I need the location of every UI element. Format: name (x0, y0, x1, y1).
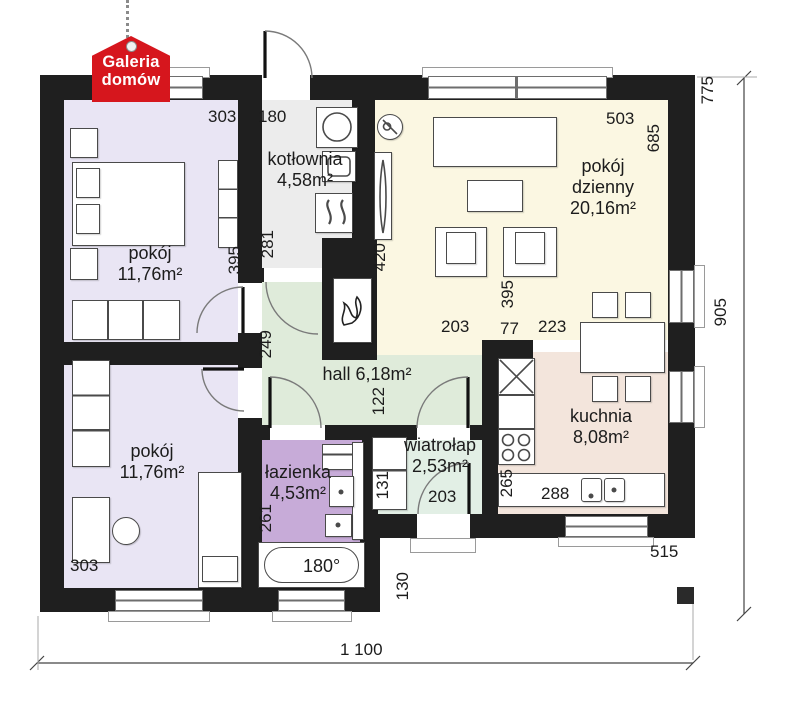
dim-wall-segment: 77 (500, 320, 519, 337)
toilet (325, 514, 352, 537)
boiler (315, 193, 353, 233)
window-kitchen-right (669, 371, 694, 423)
room-name: pokój dzienny (572, 156, 634, 197)
dim-dzienny-height: 685 (645, 124, 662, 152)
window-living-right (669, 270, 694, 323)
dim-pokoj2-width: 303 (70, 557, 98, 574)
fireplace (333, 278, 372, 343)
ceiling-lamp-icon (377, 114, 403, 140)
dining-chair (592, 292, 618, 318)
window-living-top (428, 76, 607, 99)
pillow (202, 556, 238, 582)
label-kitchen: kuchnia 8,08m² (551, 406, 651, 448)
dim-tick (737, 607, 751, 621)
window-sill (558, 537, 654, 547)
label-vestibule: wiatrołap 2,53m² (388, 435, 492, 477)
nightstand (70, 128, 98, 158)
wall-kitchen-top-chunk (482, 340, 533, 358)
room-name: pokój (130, 441, 173, 461)
dining-table (580, 322, 665, 373)
label-bedroom-bottom: pokój 11,76m² (92, 441, 212, 483)
dim-vest-wardrobe: 131 (374, 471, 391, 499)
logo-line2: domów (102, 71, 161, 89)
dim-lazienka-height: 261 (257, 504, 274, 532)
dining-chair (625, 292, 651, 318)
room-name: łazienka (265, 462, 331, 482)
window-mullion (515, 77, 518, 98)
room-area: 2,53m² (412, 456, 468, 476)
door-opening-bedroom-top (238, 283, 262, 333)
dim-total-width: 1 100 (340, 641, 383, 658)
desk (72, 497, 110, 563)
wardrobe (218, 160, 238, 248)
dim-entry-width: 180 (258, 108, 286, 125)
label-bathroom: łazienka 4,53m² (248, 462, 348, 504)
door-opening-entrance-main (417, 514, 470, 538)
logo-grommet-icon (126, 41, 137, 52)
door-opening-entrance-top (262, 75, 310, 100)
room-area: 11,76m² (120, 462, 185, 482)
label-boiler: kotłownia 4,58m² (252, 149, 358, 191)
room-name: kotłownia (267, 149, 342, 169)
window-sill (108, 611, 210, 622)
floor-plan: pokój 11,76m² kotłownia 4,58m² pokój dzi… (0, 0, 785, 704)
label-living: pokój dzienny 20,16m² (553, 156, 653, 220)
dim-pokoj1-height: 395 (226, 246, 243, 274)
chair-round (112, 517, 140, 545)
room-area: 4,58m² (277, 170, 333, 190)
sofa (433, 117, 557, 167)
room-name: wiatrołap (404, 435, 476, 455)
dim-right-total: 905 (712, 298, 729, 326)
door-arc-entrance-top (265, 31, 312, 78)
dim-kitchen-height: 265 (498, 469, 515, 497)
room-area: 20,16m² (570, 198, 636, 218)
room-name: pokój (128, 243, 171, 263)
dining-chair (592, 376, 618, 402)
washing-machine (316, 107, 358, 148)
black-square-marker (677, 587, 694, 604)
label-hall: hall 6,18m² (292, 364, 442, 385)
window-sill (272, 611, 352, 622)
window-bathroom (278, 590, 345, 611)
door-opening-bathroom (270, 425, 325, 440)
window-sill (694, 366, 705, 428)
dim-tick (737, 71, 751, 85)
stove (498, 429, 535, 465)
dim-wiatrolap-width: 203 (428, 488, 456, 505)
dim-hall-lower: 122 (370, 387, 387, 415)
logo-line1: Galeria (102, 53, 159, 71)
entrance-step (410, 538, 476, 553)
door-opening-bedroom-bottom (238, 368, 262, 418)
dim-dzienny-width: 503 (606, 110, 634, 127)
dim-hall-height: 249 (257, 330, 274, 358)
dim-pokoj1-width: 303 (208, 108, 236, 125)
kitchen-counter (498, 395, 535, 429)
dim-bottom-right-width: 515 (650, 543, 678, 560)
pillow (76, 204, 100, 234)
dim-tick (686, 656, 700, 670)
dim-kitchen-opening: 223 (538, 318, 566, 335)
fridge (498, 358, 535, 395)
room-area: 8,08m² (573, 427, 629, 447)
room-area: 6,18m² (356, 364, 412, 384)
kitchen-sink-basin (604, 478, 625, 502)
dim-hall-right: 203 (441, 318, 469, 335)
window-sill (694, 265, 705, 328)
wall-hall-bath-a (262, 425, 270, 440)
room-name: hall (322, 364, 350, 384)
dim-entry-recess: 130 (394, 572, 411, 600)
room-name: kuchnia (570, 406, 632, 426)
dim-kitchen-width: 288 (541, 485, 569, 502)
pillow (76, 168, 100, 198)
armchair-seat (515, 232, 545, 264)
door-opening-boiler-hall (264, 268, 320, 282)
dim-kotlownia-height: 281 (259, 230, 276, 258)
logo-chain (126, 0, 129, 38)
dim-tick (30, 656, 44, 670)
dim-dzienny-lower: 395 (499, 280, 516, 308)
dim-right-upper: 775 (699, 76, 716, 104)
window-bedroom-bottom (115, 590, 203, 611)
room-area: 11,76m² (118, 264, 183, 284)
room-area: 4,53m² (270, 483, 326, 503)
coffee-table (467, 180, 523, 212)
dresser (72, 300, 180, 340)
kitchen-sink-basin (581, 478, 602, 502)
wall-hall-bath-b (325, 425, 362, 440)
dim-radiator: 420 (371, 243, 388, 271)
dim-bathtub-length: 180° (303, 557, 340, 575)
dining-chair (625, 376, 651, 402)
armchair-seat (446, 232, 476, 264)
window-kitchen-bottom (565, 516, 648, 537)
radiator (374, 152, 392, 240)
label-bedroom-top: pokój 11,76m² (90, 243, 210, 285)
logo-text: Galeria domów (92, 53, 170, 89)
room-living-ext (377, 340, 482, 355)
